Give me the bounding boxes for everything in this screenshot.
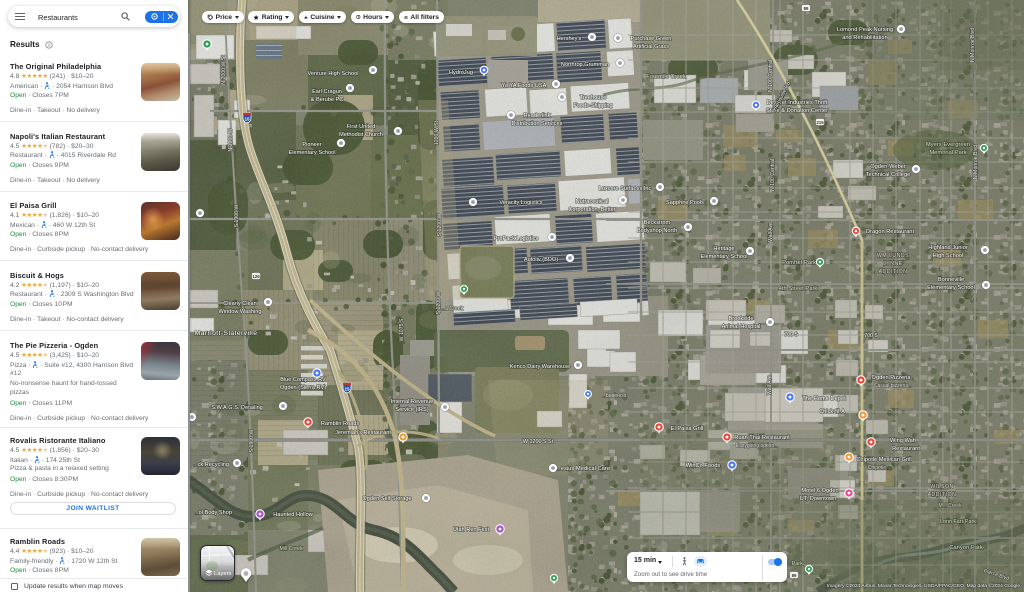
svg-text:Corporation, Better: Corporation, Better	[568, 207, 615, 213]
svg-text:The Home Depot: The Home Depot	[802, 396, 846, 402]
svg-text:UT, Downtown: UT, Downtown	[800, 496, 837, 502]
svg-text:Autoliv (BDO): Autoliv (BDO)	[524, 257, 558, 263]
svg-text:Treehouse: Treehouse	[580, 95, 607, 101]
svg-text:Ogden (Sierra RV): Ogden (Sierra RV)	[280, 385, 326, 391]
svg-text:Haunted Hollow: Haunted Hollow	[273, 512, 313, 518]
svg-text:Easygoing option...: Easygoing option...	[736, 443, 779, 449]
svg-text:First United: First United	[347, 124, 376, 130]
svg-text:S 1900 W: S 1900 W	[249, 430, 255, 453]
svg-text:Nutraceutical: Nutraceutical	[576, 199, 609, 205]
svg-text:N 1900 W: N 1900 W	[228, 128, 234, 151]
svg-text:Fourmile Creek: Fourmile Creek	[646, 74, 686, 80]
svg-text:Veracity Logistics: Veracity Logistics	[499, 200, 542, 206]
svg-text:Dragon Restaurant: Dragon Restaurant	[866, 229, 914, 235]
svg-text:Clearly Clean: Clearly Clean	[223, 301, 257, 307]
svg-text:N Monroe Blvd: N Monroe Blvd	[973, 145, 979, 179]
svg-text:Northrop Grumman: Northrop Grumman	[561, 62, 609, 68]
svg-text:15: 15	[344, 387, 350, 392]
svg-text:...ck Recycling: ...ck Recycling	[193, 462, 229, 468]
svg-text:Hershey's: Hershey's	[557, 36, 582, 42]
svg-text:700 S: 700 S	[784, 332, 798, 338]
svg-text:Kenco Dairy Warehouse: Kenco Dairy Warehouse	[510, 364, 570, 370]
svg-text:...a Creek: ...a Creek	[441, 306, 464, 312]
svg-text:Brookside: Brookside	[729, 316, 754, 322]
svg-text:Chipotle Mexican Grill: Chipotle Mexican Grill	[856, 457, 911, 463]
svg-text:Purchase Green: Purchase Green	[631, 36, 672, 42]
svg-text:M... Creek: M... Creek	[938, 503, 962, 509]
svg-text:Elementary School: Elementary School	[927, 285, 975, 291]
svg-text:Wall Ave: Wall Ave	[768, 222, 774, 242]
svg-text:S 1200 W: S 1200 W	[436, 292, 442, 315]
svg-text:126: 126	[252, 274, 260, 279]
svg-text:Window Washing: Window Washing	[218, 309, 261, 315]
svg-text:700 S: 700 S	[864, 333, 878, 339]
svg-text:15: 15	[244, 117, 250, 122]
svg-text:89: 89	[804, 6, 809, 11]
svg-text:...business: ...business	[602, 393, 627, 399]
svg-text:1200 W St: 1200 W St	[434, 120, 440, 145]
svg-text:S 1900 W: S 1900 W	[234, 205, 240, 228]
svg-text:Methodist Church: Methodist Church	[339, 132, 383, 138]
svg-text:Ramblin Roads: Ramblin Roads	[321, 421, 359, 427]
svg-text:El Paisa Grill: El Paisa Grill	[671, 426, 704, 432]
svg-text:WM LUNDS: WM LUNDS	[877, 253, 909, 259]
svg-text:Ogden-Weber: Ogden-Weber	[870, 164, 906, 170]
svg-text:Sapphire Pools: Sapphire Pools	[666, 200, 704, 206]
svg-text:LYNNE: LYNNE	[883, 261, 902, 267]
svg-text:N 100 Central: N 100 Central	[768, 60, 774, 92]
svg-text:Elementary School: Elementary School	[289, 150, 336, 156]
svg-text:Internal Revenue: Internal Revenue	[391, 399, 434, 405]
svg-text:Utah Ren Fest: Utah Ren Fest	[453, 527, 490, 533]
svg-text:Heritage: Heritage	[713, 246, 734, 252]
svg-text:Lorin Farr Park: Lorin Farr Park	[940, 519, 976, 525]
svg-text:Wall Ave: Wall Ave	[767, 375, 773, 395]
svg-text:Animal Hospital: Animal Hospital	[722, 324, 761, 330]
svg-text:Readerlink: Readerlink	[524, 113, 551, 119]
svg-text:Myers Evergreen: Myers Evergreen	[926, 142, 970, 148]
svg-text:Blue Compass RV: Blue Compass RV	[280, 377, 326, 383]
svg-text:W 1200 S St: W 1200 S St	[523, 439, 554, 445]
svg-text:HydroJug: HydroJug	[449, 70, 473, 76]
svg-text:N 100 Central: N 100 Central	[770, 159, 776, 191]
svg-text:S.W.A.G.S. Detailing: S.W.A.G.S. Detailing	[211, 405, 263, 411]
svg-text:Casual pizzeria...: Casual pizzeria...	[874, 383, 912, 389]
svg-text:ADDITION: ADDITION	[879, 269, 908, 275]
svg-text:Chick-fil-A: Chick-fil-A	[819, 409, 845, 415]
svg-text:W 1075 S: W 1075 S	[399, 318, 405, 341]
svg-text:N Monroe Blvd: N Monroe Blvd	[970, 28, 976, 62]
svg-text:Bodyshop North: Bodyshop North	[637, 228, 677, 234]
svg-text:Memorial Park: Memorial Park	[929, 150, 966, 156]
svg-text:Foods-Shipping: Foods-Shipping	[573, 103, 612, 109]
svg-text:215: 215	[816, 120, 824, 125]
svg-text:High School: High School	[933, 253, 964, 259]
svg-text:Ruan Thai Restaurant: Ruan Thai Restaurant	[734, 435, 790, 441]
svg-text:Service (IRS): Service (IRS)	[395, 407, 428, 413]
svg-text:Venture High School: Venture High School	[308, 71, 359, 77]
svg-text:Bonneville: Bonneville	[938, 277, 964, 283]
svg-text:Wing Wah: Wing Wah	[890, 438, 916, 444]
svg-text:ADDITION: ADDITION	[928, 492, 957, 498]
svg-text:Mill Creek: Mill Creek	[279, 546, 302, 552]
svg-text:S 1200 W: S 1200 W	[437, 214, 443, 237]
svg-text:ProPack Logistics: ProPack Logistics	[494, 236, 539, 242]
svg-text:Artificial Grass: Artificial Grass	[633, 44, 669, 50]
svg-text:Pomfret Park: Pomfret Park	[782, 260, 816, 266]
svg-text:Pioneer: Pioneer	[302, 142, 321, 148]
svg-text:Lomond Peak Nursing: Lomond Peak Nursing	[837, 27, 893, 33]
svg-text:...ol Body Shop: ...ol Body Shop	[194, 510, 232, 516]
svg-text:Jeremiah's Restaurant: Jeremiah's Restaurant	[335, 430, 391, 436]
svg-text:Earl Cragun: Earl Cragun	[312, 89, 342, 95]
svg-text:WILSON: WILSON	[930, 484, 953, 490]
svg-text:Motel 6 Ogden: Motel 6 Ogden	[801, 488, 838, 494]
svg-text:Luxcore Surfaces Inc: Luxcore Surfaces Inc	[599, 186, 652, 192]
svg-text:4th Street Park: 4th Street Park	[779, 286, 818, 292]
svg-text:...esius Medical Care: ...esius Medical Care	[556, 466, 610, 472]
svg-text:Highland Junior: Highland Junior	[928, 245, 968, 251]
svg-text:WinCo Foods: WinCo Foods	[686, 463, 721, 469]
svg-text:...Park: ...Park	[787, 561, 803, 567]
svg-text:Chipotle...: Chipotle...	[868, 465, 891, 471]
svg-text:Restaurant: Restaurant	[892, 446, 920, 452]
svg-text:Marriott-Slaterville: Marriott-Slaterville	[195, 330, 258, 337]
svg-text:Ogden Pizzeria: Ogden Pizzeria	[872, 375, 912, 381]
svg-text:Ya YA Foods USA: Ya YA Foods USA	[502, 83, 547, 89]
svg-text:Canyon Park: Canyon Park	[949, 545, 983, 551]
svg-text:& Berube PC: & Berube PC	[311, 97, 344, 103]
svg-text:Ogden Self Storage: Ogden Self Storage	[362, 496, 411, 502]
svg-text:Elementary School: Elementary School	[701, 254, 748, 260]
svg-text:89: 89	[792, 573, 797, 578]
svg-text:Technical College: Technical College	[866, 172, 911, 178]
svg-text:Distribution Services: Distribution Services	[512, 121, 563, 127]
svg-text:Beckstrom: Beckstrom	[644, 220, 671, 226]
svg-text:N 2000 W St: N 2000 W St	[221, 55, 227, 85]
svg-text:and Rehabilitation: and Rehabilitation	[842, 35, 888, 41]
